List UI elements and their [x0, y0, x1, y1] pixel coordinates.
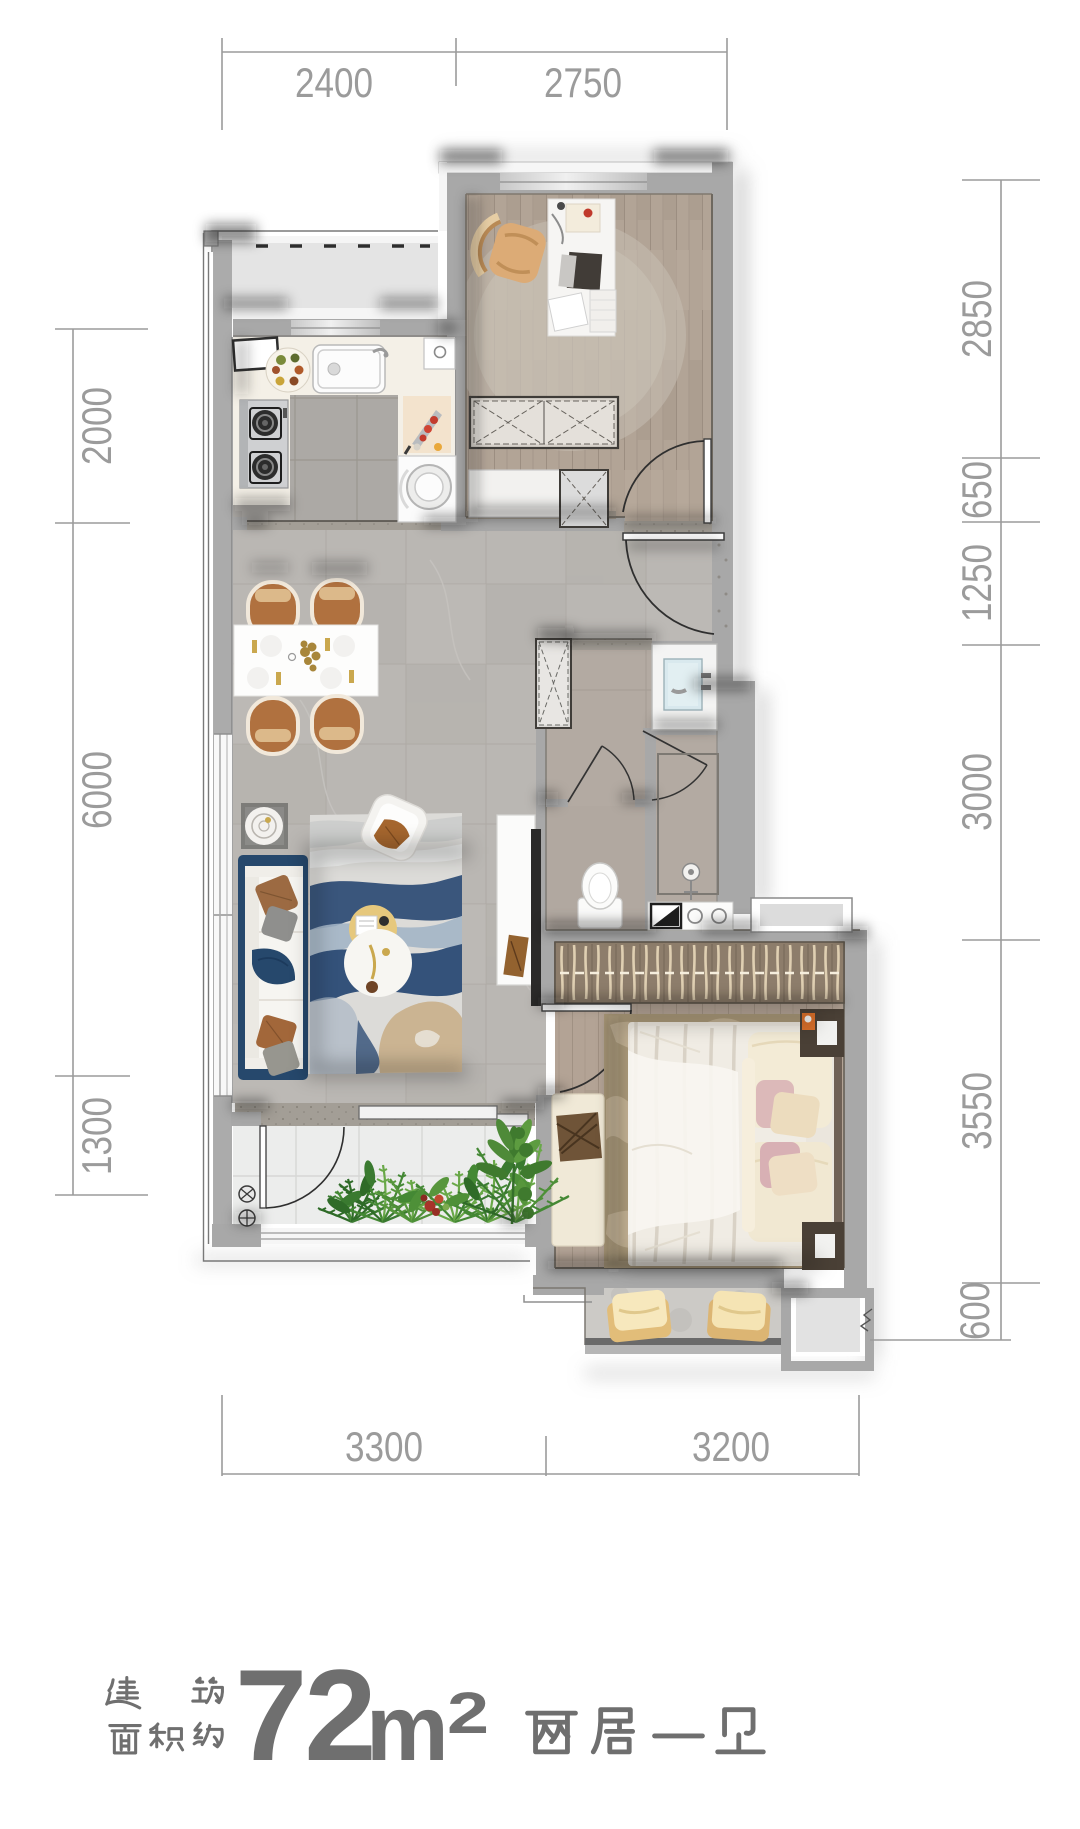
- svg-text:1300: 1300: [73, 1097, 120, 1175]
- svg-text:3550: 3550: [953, 1072, 1000, 1150]
- svg-text:6000: 6000: [73, 751, 120, 829]
- svg-text:2: 2: [447, 1681, 489, 1746]
- svg-text:3300: 3300: [345, 1423, 423, 1470]
- svg-text:2000: 2000: [73, 387, 120, 465]
- svg-text:m: m: [366, 1676, 449, 1780]
- svg-text:650: 650: [953, 461, 1000, 519]
- svg-text:72: 72: [235, 1642, 374, 1788]
- svg-text:2400: 2400: [295, 59, 373, 106]
- svg-text:3000: 3000: [953, 753, 1000, 831]
- svg-text:2750: 2750: [544, 59, 622, 106]
- svg-text:2850: 2850: [953, 280, 1000, 358]
- svg-text:1250: 1250: [953, 544, 1000, 622]
- svg-text:3200: 3200: [692, 1423, 770, 1470]
- svg-text:600: 600: [951, 1282, 998, 1340]
